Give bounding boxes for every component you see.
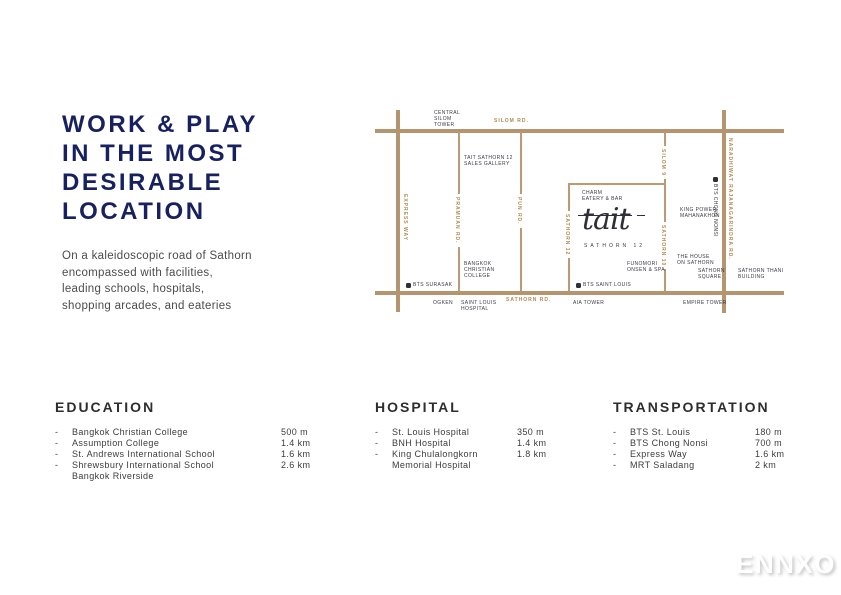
section-transportation: TRANSPORTATION - BTS St. Louis 180 m - B…: [613, 399, 808, 471]
place-ogken: OGKEN: [433, 300, 453, 306]
road-label-naradhiwat: NARADHIWAT RAJANAGARINDRA RD.: [727, 138, 733, 260]
list-item: - BNH Hospital 1.4 km: [375, 438, 565, 449]
place-house-on-sathorn: THE HOUSE ON SATHORN: [677, 254, 714, 266]
item-distance: 1.6 km: [281, 449, 310, 460]
section-title: HOSPITAL: [375, 399, 565, 415]
list-item: - BTS St. Louis 180 m: [613, 427, 808, 438]
place-empire-tower: EMPIRE TOWER: [683, 300, 727, 306]
station-bts-chong-nonsi: BTS CHONG NONSI: [712, 177, 718, 237]
road-connector: [568, 183, 665, 185]
road-label-sathorn12: SATHORN 12: [564, 211, 570, 258]
item-name: Assumption College: [72, 438, 281, 449]
section-title: TRANSPORTATION: [613, 399, 808, 415]
item-name: BTS Chong Nonsi: [630, 438, 755, 449]
list-item: - Bangkok Christian College 500 m: [55, 427, 327, 438]
item-name: BNH Hospital: [392, 438, 517, 449]
road-label-pramuan: PRAMUAN RD.: [454, 194, 460, 247]
list-item: - Shrewsbury International School Bangko…: [55, 460, 327, 482]
list-item: - Assumption College 1.4 km: [55, 438, 327, 449]
tait-logo-subtitle: SATHORN 12: [584, 243, 645, 249]
place-funomori: FUNOMORI ONSEN & SPA: [627, 261, 665, 273]
list-item: - St. Andrews International School 1.6 k…: [55, 449, 327, 460]
item-distance: 1.4 km: [517, 438, 546, 449]
road-express-way: [396, 110, 400, 312]
item-distance: 500 m: [281, 427, 308, 438]
item-name: Bangkok Christian College: [72, 427, 281, 438]
place-saint-louis-hospital: SAINT LOUIS HOSPITAL: [461, 300, 496, 312]
list-item: - MRT Saladang 2 km: [613, 460, 808, 471]
bts-icon: [576, 283, 581, 288]
place-sathorn-thani: SATHORN THANI BUILDING: [738, 268, 784, 280]
section-hospital: HOSPITAL - St. Louis Hospital 350 m - BN…: [375, 399, 565, 471]
section-education: EDUCATION - Bangkok Christian College 50…: [55, 399, 327, 482]
bts-icon: [713, 177, 718, 182]
place-aia-tower: AIA TOWER: [573, 300, 604, 306]
road-naradhiwat: [722, 110, 726, 313]
station-bts-saint-louis: BTS SAINT LOUIS: [576, 282, 631, 288]
item-distance: 180 m: [755, 427, 782, 438]
station-label: BTS SAINT LOUIS: [583, 282, 631, 288]
item-distance: 350 m: [517, 427, 544, 438]
list-item: - King Chulalongkorn Memorial Hospital 1…: [375, 449, 565, 471]
tait-logo-dash: [637, 215, 645, 216]
item-distance: 1.8 km: [517, 449, 546, 471]
place-bangkok-christian-college: BANGKOK CHRISTIAN COLLEGE: [464, 261, 495, 279]
list-item: - Express Way 1.6 km: [613, 449, 808, 460]
road-label-pun: PUN RD.: [516, 194, 522, 228]
item-name: St. Andrews International School: [72, 449, 281, 460]
road-label-sathorn: SATHORN RD.: [506, 297, 551, 303]
page: WORK & PLAY IN THE MOST DESIRABLE LOCATI…: [0, 0, 841, 595]
place-central-silom-tower: CENTRAL SILOM TOWER: [434, 110, 460, 128]
item-name: St. Louis Hospital: [392, 427, 517, 438]
road-label-express-way: EXPRESS WAY: [402, 194, 408, 241]
item-name: BTS St. Louis: [630, 427, 755, 438]
tait-logo: tait: [582, 202, 630, 237]
road-label-silom: SILOM RD.: [494, 118, 529, 124]
item-distance: 2 km: [755, 460, 776, 471]
tait-logo-stroke: [578, 215, 632, 216]
list-item: - BTS Chong Nonsi 700 m: [613, 438, 808, 449]
section-title: EDUCATION: [55, 399, 327, 415]
station-bts-surasak: BTS SURASAK: [406, 282, 452, 288]
item-name: King Chulalongkorn Memorial Hospital: [392, 449, 517, 471]
item-name: Shrewsbury International School Bangkok …: [72, 460, 281, 482]
list-item: - St. Louis Hospital 350 m: [375, 427, 565, 438]
road-label-silom9: SILOM 9: [660, 146, 666, 179]
item-distance: 2.6 km: [281, 460, 310, 482]
item-name: Express Way: [630, 449, 755, 460]
ennxo-watermark: ENNXO: [736, 549, 836, 580]
place-charm-eatery: CHARM EATERY & BAR: [582, 190, 623, 202]
item-name: MRT Saladang: [630, 460, 755, 471]
bts-icon: [406, 283, 411, 288]
item-distance: 700 m: [755, 438, 782, 449]
place-sales-gallery: TAIT SATHORN 12 SALES GALLERY: [464, 155, 513, 167]
place-sathorn-square: SATHORN SQUARE: [698, 268, 725, 280]
item-distance: 1.4 km: [281, 438, 310, 449]
station-label: BTS SURASAK: [413, 282, 452, 288]
item-distance: 1.6 km: [755, 449, 784, 460]
location-map: SILOM RD. SATHORN RD. EXPRESS WAY PRAMUA…: [0, 0, 841, 595]
station-label: BTS CHONG NONSI: [712, 184, 718, 237]
